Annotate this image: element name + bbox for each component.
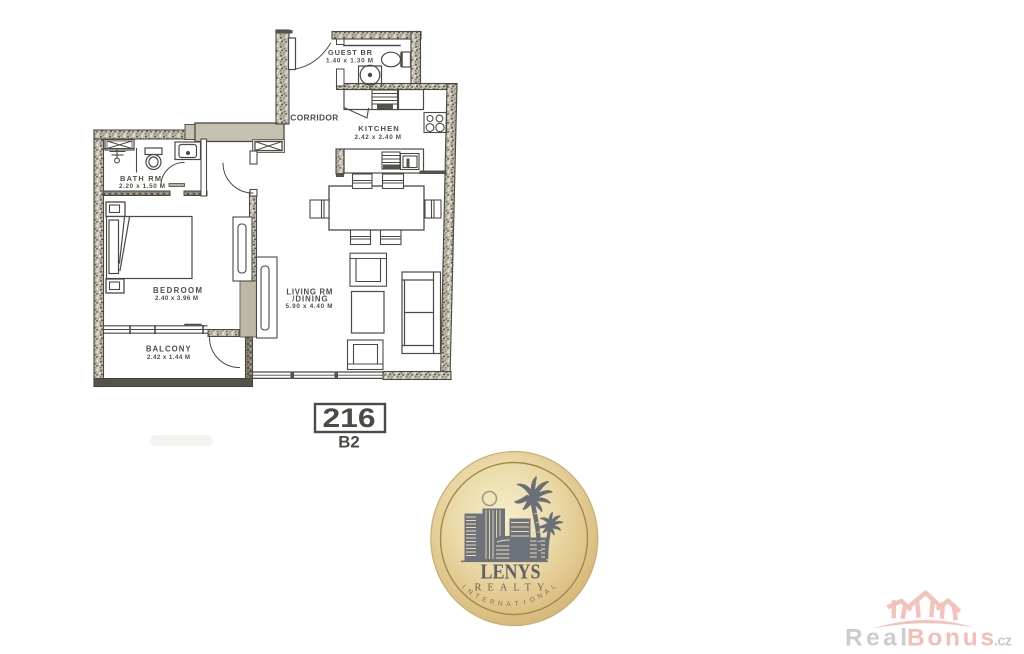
svg-text:2.40 x 3.96 M: 2.40 x 3.96 M: [155, 295, 198, 302]
svg-text:GUEST BR: GUEST BR: [328, 48, 373, 57]
svg-text:KITCHEN: KITCHEN: [358, 124, 399, 133]
svg-text:BATH RM: BATH RM: [120, 174, 161, 183]
svg-text:1.40 x 1.30 M: 1.40 x 1.30 M: [326, 58, 373, 65]
svg-text:2.20 x 1.50 M: 2.20 x 1.50 M: [119, 183, 165, 190]
svg-text:T: T: [514, 600, 519, 607]
svg-text:5.90 x 4.40 M: 5.90 x 4.40 M: [286, 303, 333, 310]
svg-text:CORRIDOR: CORRIDOR: [290, 113, 338, 123]
svg-text:Real: Real: [845, 625, 907, 652]
svg-text:BALCONY: BALCONY: [146, 345, 191, 354]
svg-text:.cz: .cz: [994, 634, 1012, 650]
svg-text:216: 216: [323, 403, 376, 433]
svg-text:2.42 x 2.40 M: 2.42 x 2.40 M: [355, 134, 402, 141]
svg-text:BEDROOM: BEDROOM: [153, 286, 202, 295]
svg-text:2.42 x 1.44 M: 2.42 x 1.44 M: [147, 354, 190, 361]
svg-text:LENYS: LENYS: [481, 560, 541, 584]
svg-text:B2: B2: [338, 434, 360, 452]
svg-text:A: A: [506, 601, 511, 608]
svg-text:Bonus: Bonus: [907, 625, 994, 652]
